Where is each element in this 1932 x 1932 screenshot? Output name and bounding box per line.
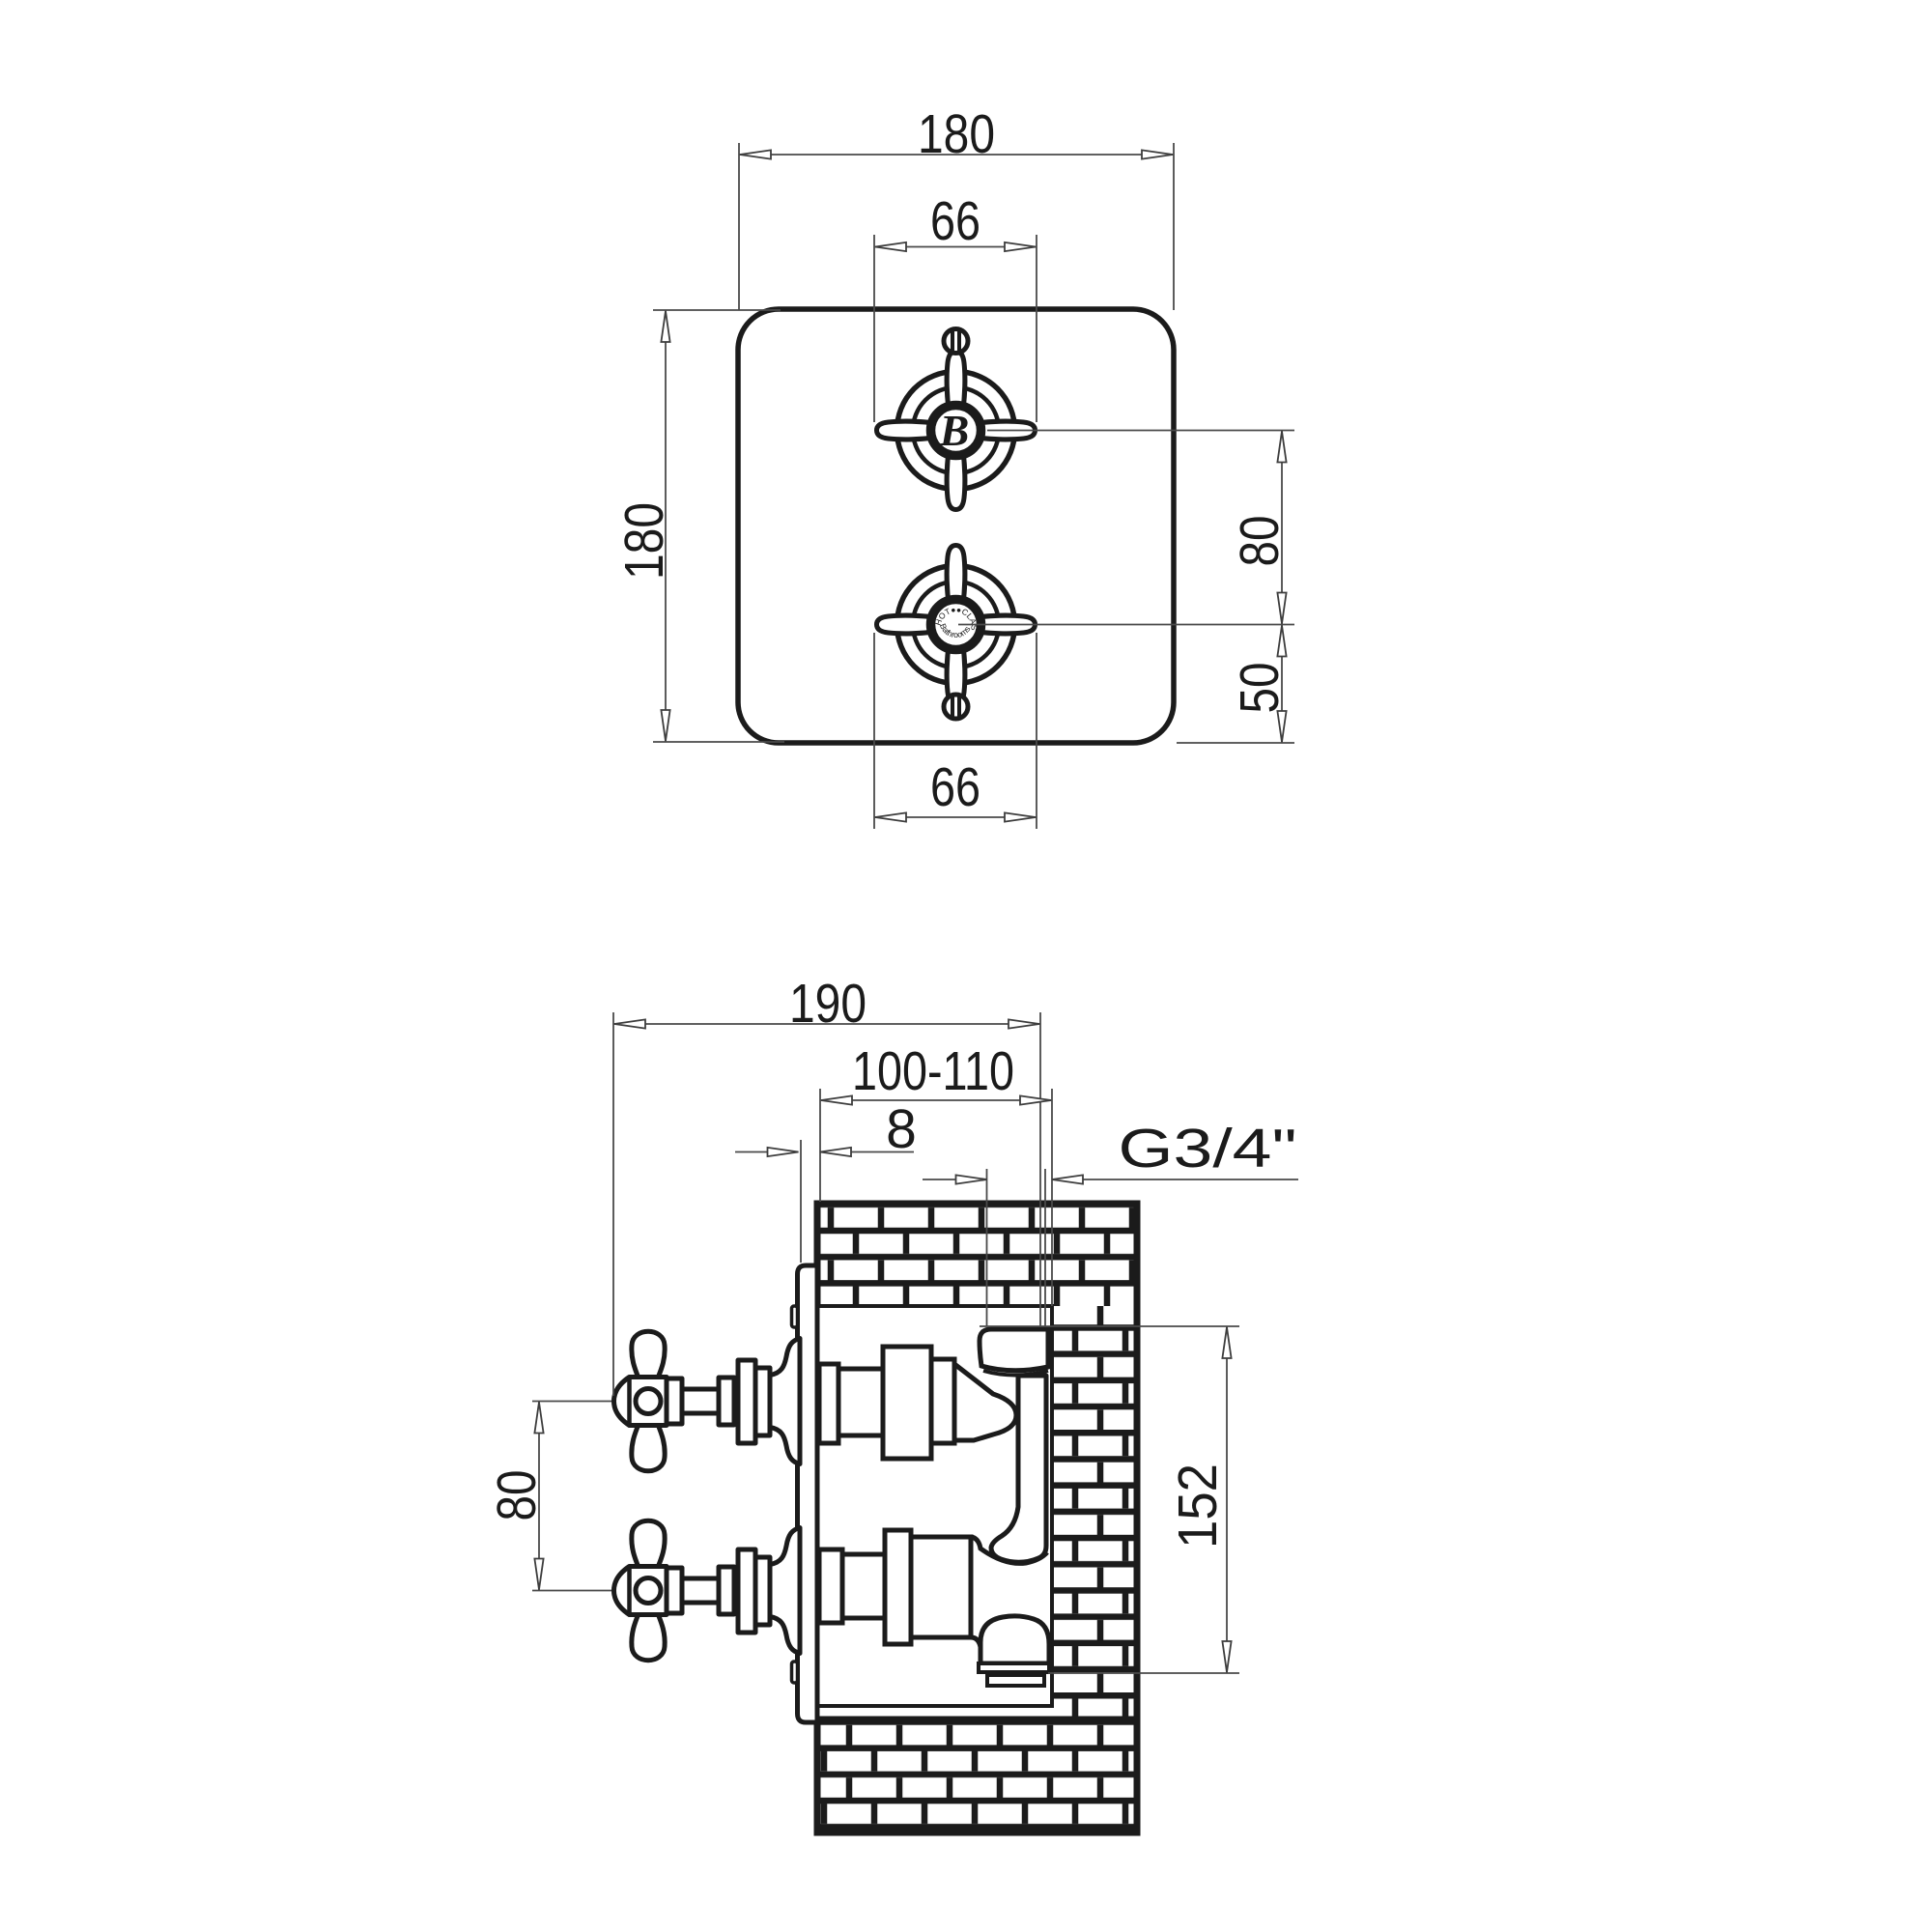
svg-text:152: 152 xyxy=(1167,1463,1229,1548)
svg-text:8: 8 xyxy=(886,1098,917,1160)
svg-text:80: 80 xyxy=(486,1470,548,1521)
svg-text:B: B xyxy=(939,406,970,455)
svg-text:190: 190 xyxy=(789,973,867,1035)
svg-text:G3/4": G3/4" xyxy=(1119,1118,1297,1179)
svg-text:180: 180 xyxy=(918,103,995,165)
svg-text:66: 66 xyxy=(930,190,980,252)
svg-text:80: 80 xyxy=(1229,516,1291,567)
svg-text:100-110: 100-110 xyxy=(852,1040,1014,1102)
svg-text:180: 180 xyxy=(613,502,675,580)
svg-text:50: 50 xyxy=(1229,663,1291,714)
svg-text:66: 66 xyxy=(930,756,980,818)
